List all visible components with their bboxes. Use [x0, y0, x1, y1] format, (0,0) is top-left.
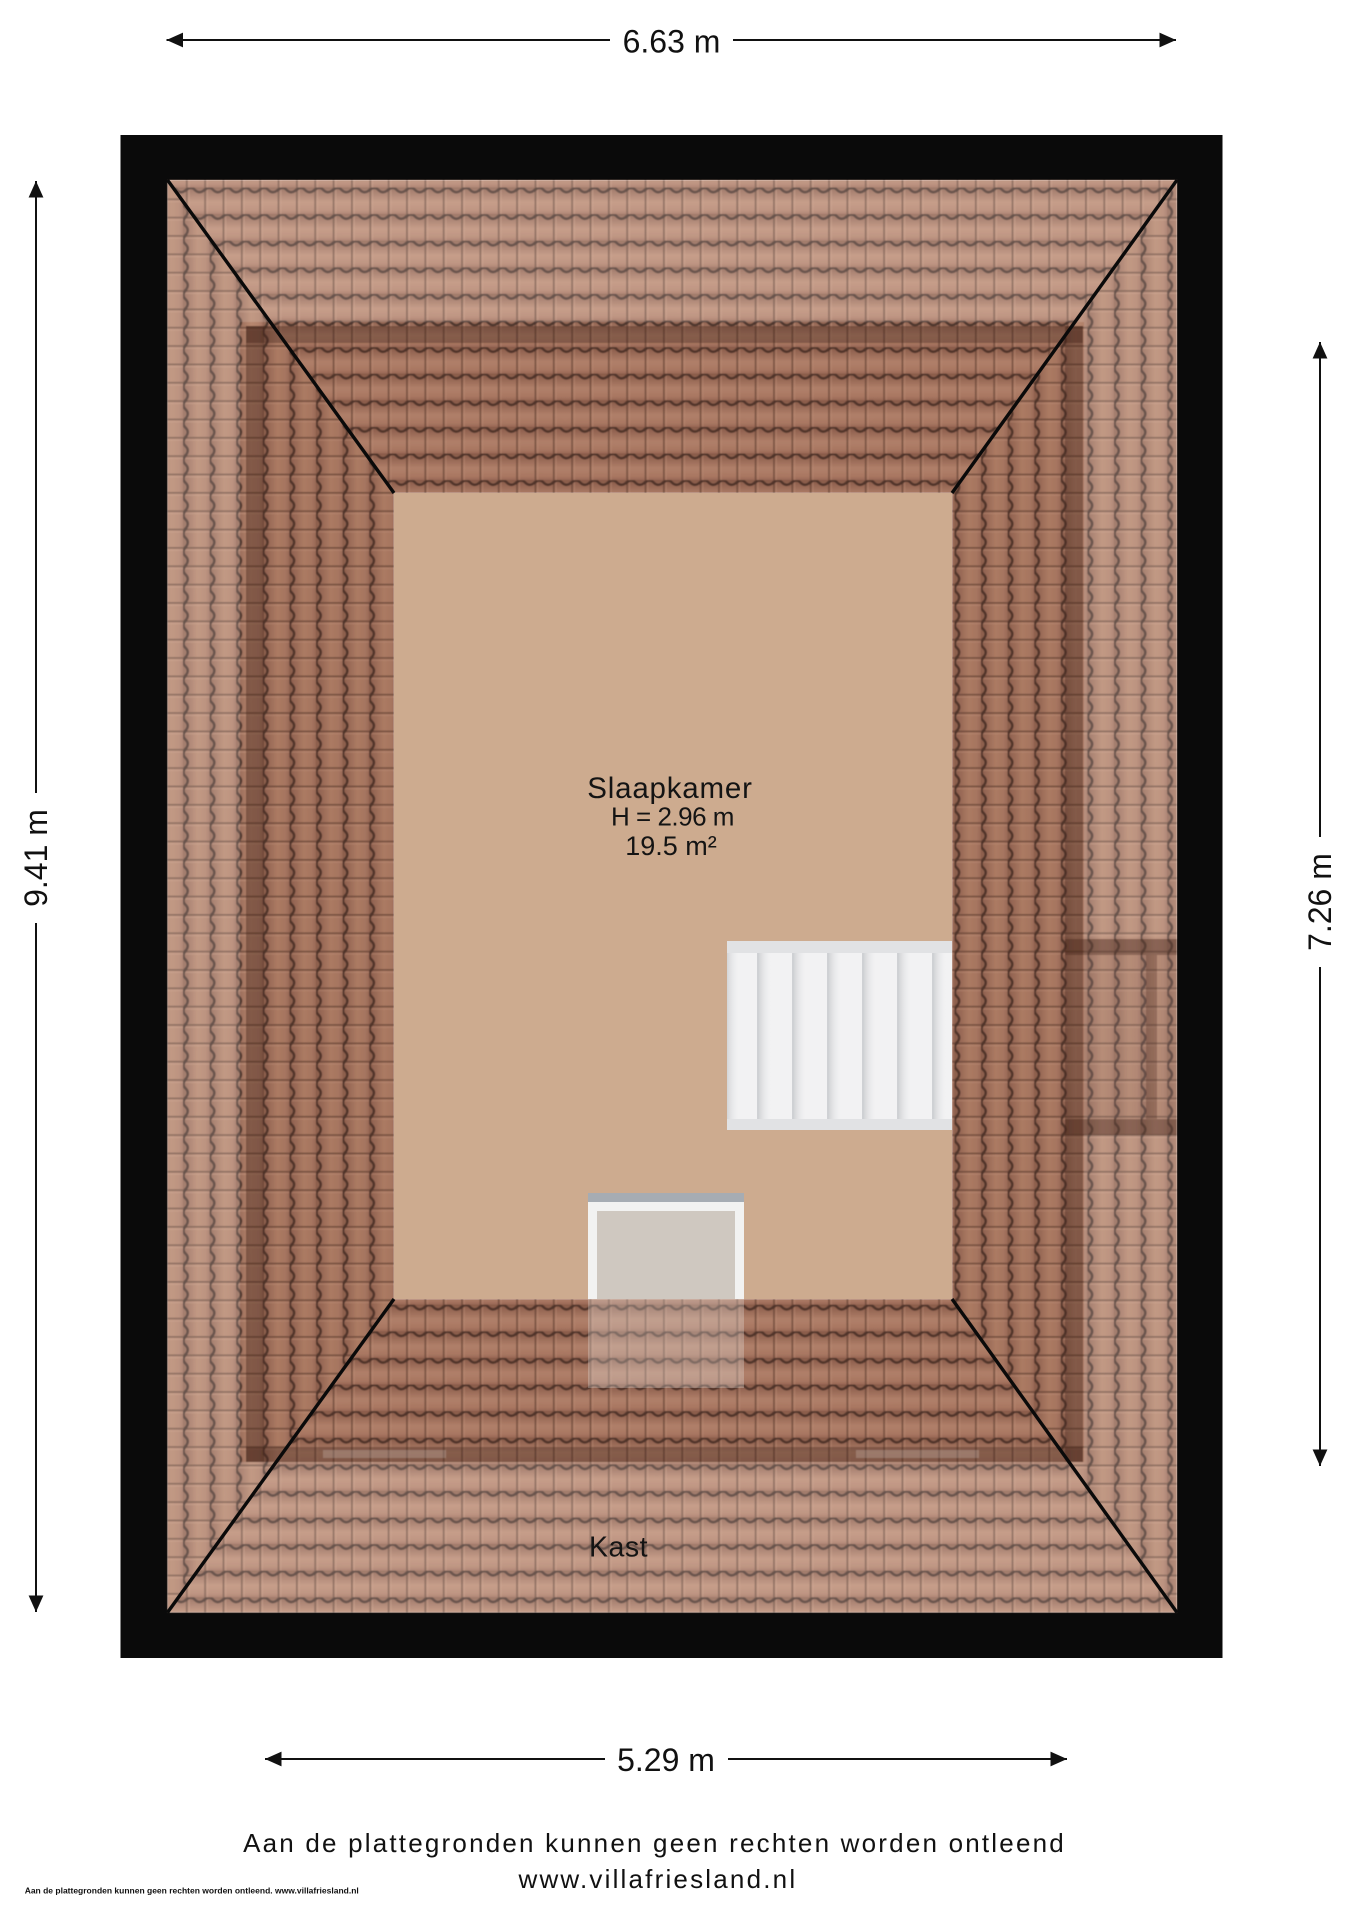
svg-text:6.63 m: 6.63 m	[623, 24, 721, 60]
svg-text:www.villafriesland.nl: www.villafriesland.nl	[517, 1864, 797, 1894]
svg-text:7.26 m: 7.26 m	[1302, 853, 1338, 951]
svg-text:5.29 m: 5.29 m	[617, 1742, 715, 1778]
svg-text:Slaapkamer: Slaapkamer	[587, 772, 752, 805]
svg-text:Aan de plattegronden kunnen ge: Aan de plattegronden kunnen geen rechten…	[243, 1828, 1066, 1858]
svg-text:9.41 m: 9.41 m	[18, 809, 54, 907]
svg-text:Kast: Kast	[589, 1532, 648, 1564]
svg-text:H = 2.96 m: H = 2.96 m	[611, 802, 734, 832]
svg-text:19.5 m²: 19.5 m²	[625, 831, 717, 861]
svg-text:Aan de plattegronden kunnen ge: Aan de plattegronden kunnen geen rechten…	[25, 1886, 359, 1896]
